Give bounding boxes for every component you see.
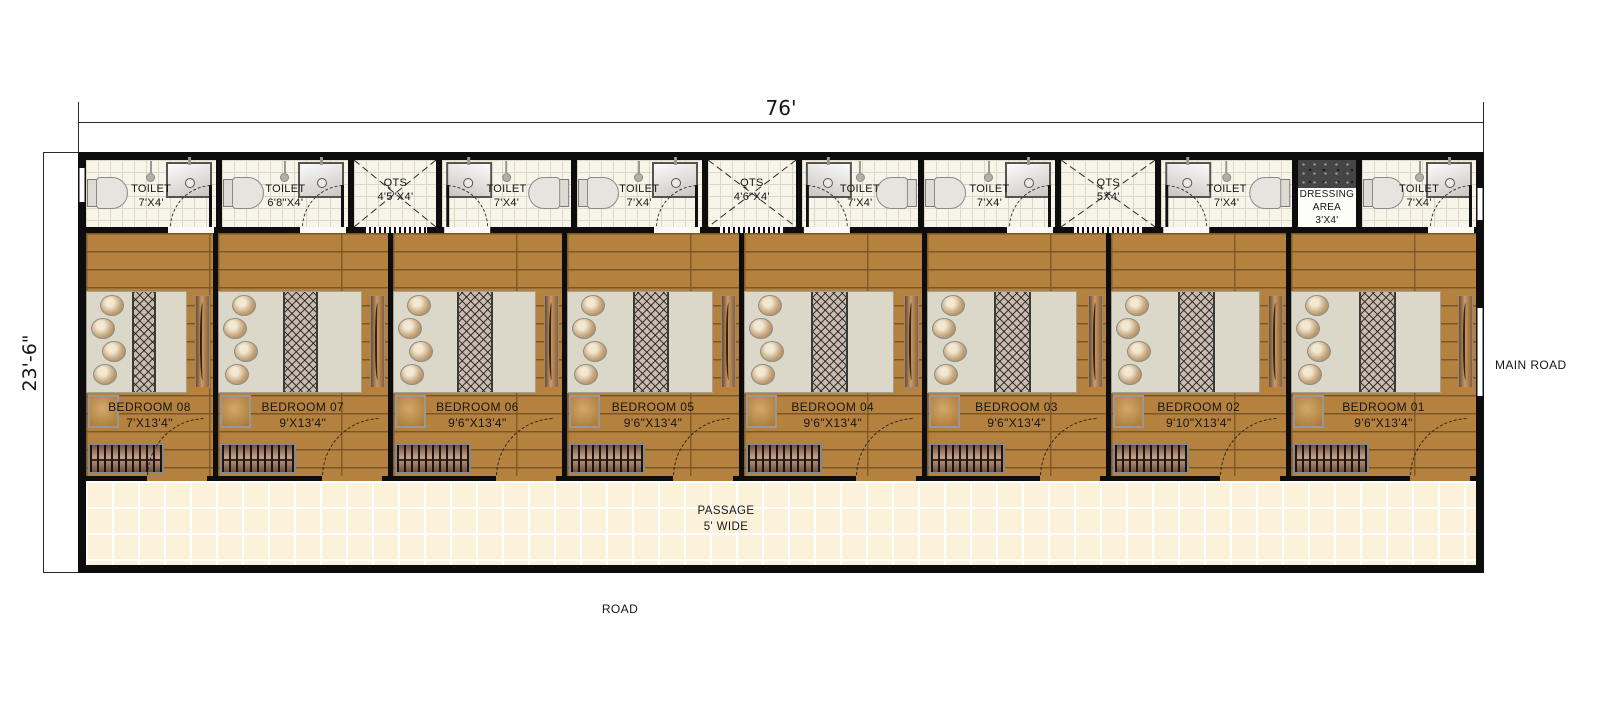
top-dimension-line: [78, 122, 1484, 123]
room-label: QTS4'6"X4': [708, 176, 796, 204]
wardrobe: [569, 443, 645, 474]
room-label: BEDROOM 039'6"X13'4": [927, 399, 1107, 431]
room-label: QTS5X4': [1061, 176, 1155, 204]
road-label: ROAD: [560, 602, 680, 616]
dresser: [904, 295, 919, 388]
double-bed: [744, 291, 894, 393]
pillow: [758, 295, 782, 316]
qts-room-2: QTS4'6"X4': [708, 160, 796, 227]
pillow: [409, 341, 433, 362]
pillow: [932, 318, 956, 339]
dresser: [721, 295, 736, 388]
wardrobe: [929, 443, 1005, 474]
pillow: [407, 295, 431, 316]
toilet-room-6: TOILET7'X4': [442, 160, 570, 227]
pillow: [572, 318, 596, 339]
bedroom-03: BEDROOM 039'6"X13'4": [927, 233, 1107, 476]
room-label: DRESSING AREA3'X4': [1298, 188, 1356, 227]
pillow: [398, 318, 422, 339]
blanket: [1359, 292, 1396, 392]
shower-head-icon: [984, 173, 993, 182]
pillow: [1127, 341, 1151, 362]
bedroom-07: BEDROOM 079'X13'4": [218, 233, 388, 476]
room-label: BEDROOM 079'X13'4": [218, 399, 388, 431]
pillow: [234, 341, 258, 362]
dresser: [1268, 295, 1283, 388]
pillow: [1296, 318, 1320, 339]
main-road-label: MAIN ROAD: [1495, 358, 1595, 372]
shower-head-icon: [1223, 173, 1232, 182]
dresser: [544, 295, 559, 388]
shower-head-icon: [634, 173, 643, 182]
floor-plan-canvas: 76' 23'-6" MAIN ROAD ROAD TOILET7'X4': [0, 0, 1600, 727]
blanket: [283, 292, 318, 392]
toilet-room-5: TOILET7'X4': [577, 160, 702, 227]
shower-head-icon: [280, 173, 289, 182]
toilet-room-3: TOILET7'X4': [924, 160, 1055, 227]
qts-room-3: QTS5X4': [1061, 160, 1155, 227]
toilet-room-8: TOILET7'X4': [86, 160, 216, 227]
room-label: BEDROOM 087'X13'4": [86, 399, 213, 431]
toilet-room-2: TOILET7'X4': [1161, 160, 1291, 227]
left-dimension-line: [43, 152, 44, 573]
pillow: [934, 364, 958, 385]
extension-line: [43, 572, 78, 573]
room-label: TOILET7'X4': [1362, 182, 1476, 210]
shower-head-icon: [856, 173, 865, 182]
pillow: [223, 318, 247, 339]
bedroom-strip: BEDROOM 087'X13'4" BEDROOM 079'X13'4": [86, 233, 1476, 481]
wardrobe: [1113, 443, 1189, 474]
blanket: [457, 292, 492, 392]
pillow: [751, 364, 775, 385]
pillow: [91, 318, 115, 339]
extension-line: [43, 152, 78, 153]
room-label: BEDROOM 019'6"X13'4": [1291, 399, 1476, 431]
pillow: [100, 295, 124, 316]
wardrobe: [1293, 443, 1369, 474]
room-label: TOILET7'X4': [442, 182, 570, 210]
pillow: [581, 295, 605, 316]
toilet-room-7: TOILET6'8"X4': [222, 160, 348, 227]
qts-room-1: QTS4'5"X4': [354, 160, 436, 227]
window: [1476, 186, 1484, 222]
room-label: BEDROOM 069'6"X13'4": [393, 399, 563, 431]
pillow: [225, 364, 249, 385]
pillow: [1298, 364, 1322, 385]
pillow: [583, 341, 607, 362]
toilet-room-1: TOILET7'X4': [1362, 160, 1476, 227]
double-bed: [1291, 291, 1441, 393]
pillow: [749, 318, 773, 339]
wardrobe: [395, 443, 471, 474]
pillow: [400, 364, 424, 385]
pillow: [102, 341, 126, 362]
granite-counter: [1298, 160, 1356, 188]
height-dimension-label: 23'-6": [19, 303, 41, 423]
room-label: BEDROOM 059'6"X13'4": [567, 399, 739, 431]
room-label: QTS4'5"X4': [354, 176, 436, 204]
window: [78, 166, 86, 204]
pillow: [93, 364, 117, 385]
double-bed: [86, 291, 187, 393]
pillow: [1116, 318, 1140, 339]
blanket: [994, 292, 1031, 392]
room-label: TOILET7'X4': [924, 182, 1055, 210]
width-dimension-label: 76': [78, 96, 1484, 120]
dresser: [1088, 295, 1103, 388]
shower-head-icon: [503, 173, 512, 182]
double-bed: [218, 291, 362, 393]
bedroom-06: BEDROOM 069'6"X13'4": [393, 233, 563, 476]
pillow: [760, 341, 784, 362]
pillow: [232, 295, 256, 316]
toilet-strip: TOILET7'X4' TOILET6'8"X4' QTS: [86, 160, 1476, 233]
pillow: [1305, 295, 1329, 316]
room-label: TOILET7'X4': [86, 182, 216, 210]
passage: PASSAGE 5' WIDE: [86, 481, 1476, 565]
double-bed: [567, 291, 713, 393]
blanket: [1178, 292, 1215, 392]
blanket: [811, 292, 848, 392]
shower-head-icon: [146, 173, 155, 182]
blanket: [132, 292, 157, 392]
room-label: TOILET7'X4': [577, 182, 702, 210]
bedroom-04: BEDROOM 049'6"X13'4": [744, 233, 922, 476]
pillow: [1125, 295, 1149, 316]
blanket: [633, 292, 669, 392]
room-label: TOILET6'8"X4': [222, 182, 348, 210]
wardrobe: [220, 443, 296, 474]
dressing-area: DRESSING AREA3'X4': [1298, 160, 1356, 227]
double-bed: [393, 291, 537, 393]
room-label: BEDROOM 029'10"X13'4": [1111, 399, 1286, 431]
room-label: TOILET7'X4': [802, 182, 918, 210]
pillow: [1118, 364, 1142, 385]
room-label: TOILET7'X4': [1161, 182, 1291, 210]
pillow: [943, 341, 967, 362]
toilet-room-4: TOILET7'X4': [802, 160, 918, 227]
bedroom-08: BEDROOM 087'X13'4": [86, 233, 213, 476]
double-bed: [927, 291, 1077, 393]
double-bed: [1111, 291, 1260, 393]
room-label: BEDROOM 049'6"X13'4": [744, 399, 922, 431]
pillow: [941, 295, 965, 316]
pillow: [574, 364, 598, 385]
wardrobe: [746, 443, 822, 474]
shower-head-icon: [1415, 173, 1424, 182]
bedroom-01: BEDROOM 019'6"X13'4": [1291, 233, 1476, 476]
building-outline: TOILET7'X4' TOILET6'8"X4' QTS: [78, 152, 1484, 573]
dresser: [1458, 295, 1473, 388]
bedroom-02: BEDROOM 029'10"X13'4": [1111, 233, 1286, 476]
dresser: [370, 295, 385, 388]
dresser: [195, 295, 210, 388]
pillow: [1307, 341, 1331, 362]
bedroom-05: BEDROOM 059'6"X13'4": [567, 233, 739, 476]
passage-label: PASSAGE 5' WIDE: [661, 503, 791, 535]
window: [1476, 306, 1484, 398]
